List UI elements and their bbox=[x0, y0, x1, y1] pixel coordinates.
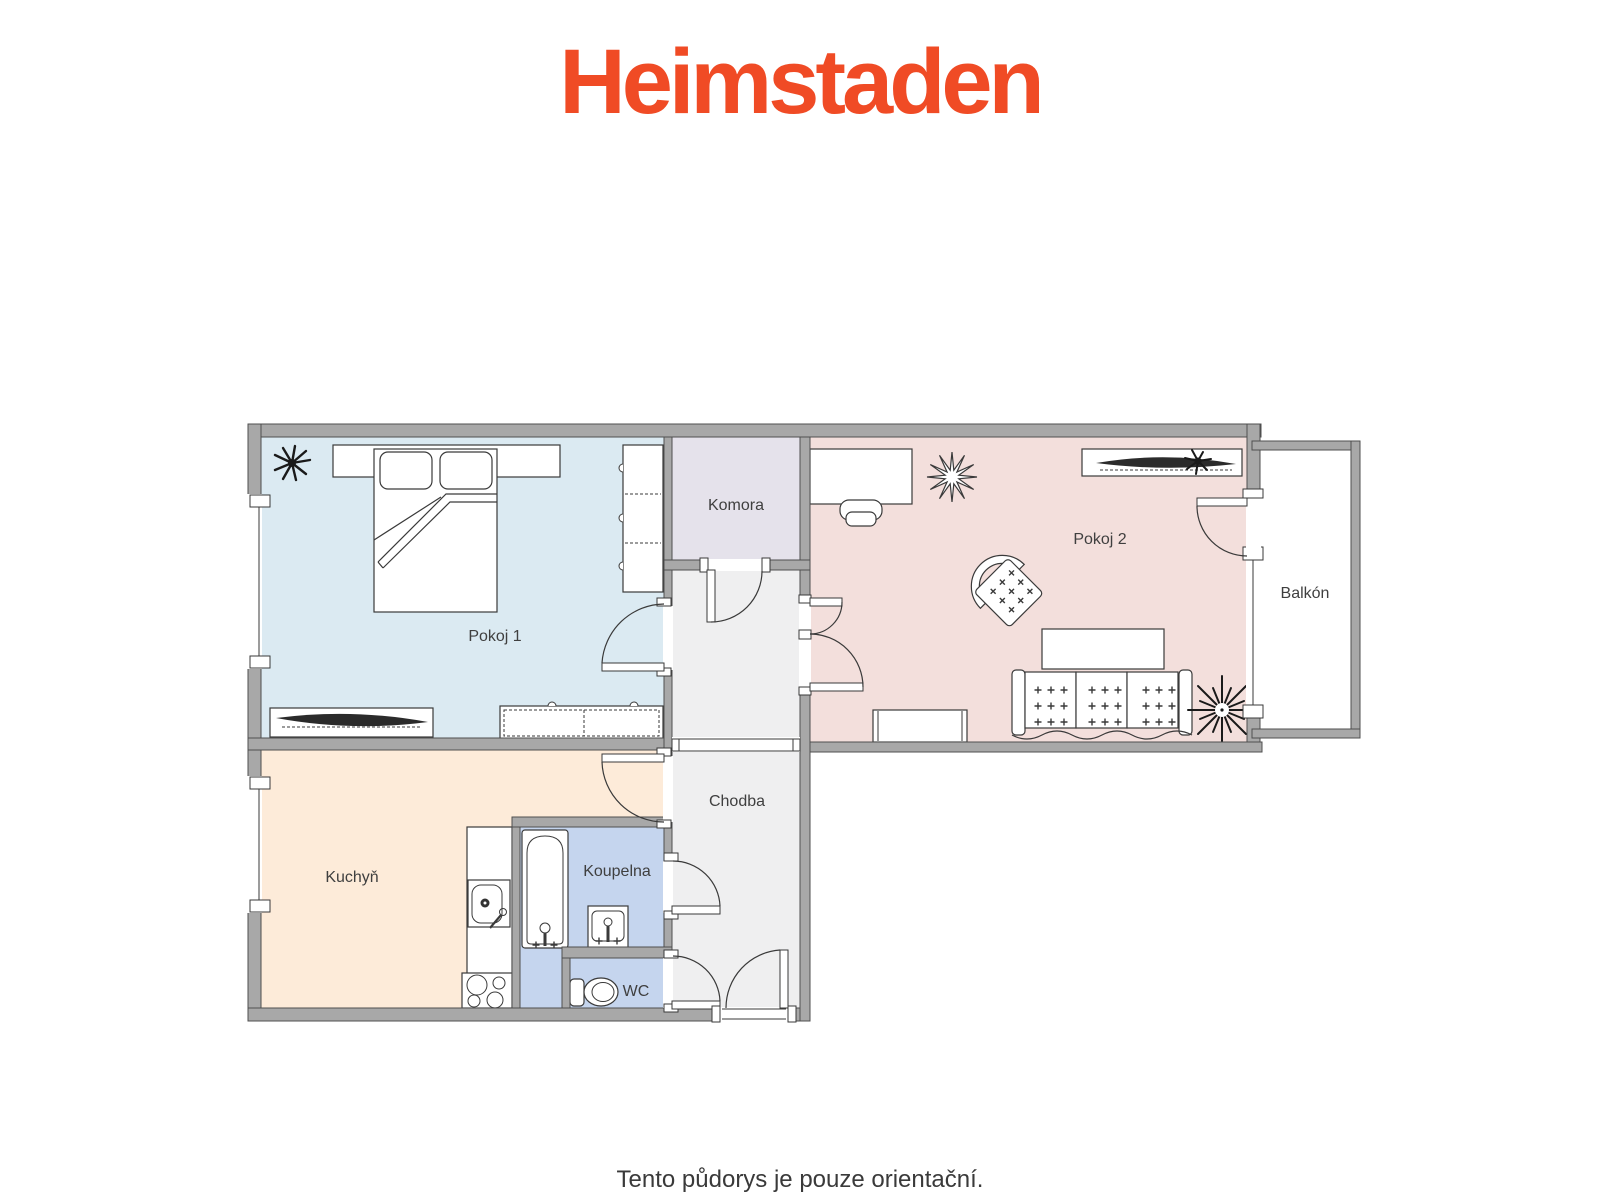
kitchen-sink bbox=[468, 880, 510, 928]
label-pokoj2: Pokoj 2 bbox=[1073, 531, 1126, 548]
chodba-floor bbox=[668, 566, 804, 1014]
wardrobe bbox=[619, 445, 663, 592]
wall-balkon-right bbox=[1351, 441, 1360, 738]
passage-chodba bbox=[672, 737, 800, 752]
bathroom-sink bbox=[588, 906, 628, 948]
wall-balkon-top bbox=[1252, 441, 1360, 450]
bathtub bbox=[522, 830, 568, 949]
desk-chair bbox=[840, 500, 882, 526]
label-wc: WC bbox=[623, 983, 650, 1000]
window-pokoj2 bbox=[1243, 547, 1263, 718]
page: Heimstaden bbox=[0, 0, 1600, 1200]
wall-koupelna-wc bbox=[562, 947, 672, 958]
cabinet bbox=[873, 710, 967, 742]
disclaimer-text: Tento půdorys je pouze orientační. bbox=[0, 1166, 1600, 1194]
label-komora: Komora bbox=[708, 497, 764, 514]
coffee-table bbox=[1042, 629, 1164, 669]
label-kuchyn: Kuchyň bbox=[325, 869, 378, 886]
dresser bbox=[500, 702, 663, 740]
desk bbox=[810, 449, 912, 504]
floorplan: Pokoj 1 Komora Pokoj 2 Balkón Kuchyň Kou… bbox=[0, 0, 1600, 1200]
wall-koupelna-top bbox=[512, 817, 672, 827]
label-balkon: Balkón bbox=[1281, 585, 1330, 602]
radiator bbox=[270, 708, 433, 737]
stove bbox=[462, 973, 512, 1008]
wall-top bbox=[248, 424, 1261, 437]
pillow bbox=[380, 452, 432, 489]
toilet bbox=[570, 978, 618, 1006]
furniture-kuchyn bbox=[462, 827, 512, 1008]
wall-interior-vertical bbox=[664, 437, 672, 1008]
label-koupelna: Koupelna bbox=[583, 863, 651, 880]
label-chodba: Chodba bbox=[709, 793, 765, 810]
wall-divider bbox=[248, 738, 672, 750]
wall-pokoj2-bottom bbox=[800, 742, 1262, 752]
wall-counter bbox=[512, 827, 520, 1008]
label-pokoj1: Pokoj 1 bbox=[468, 628, 521, 645]
wall-balkon-bottom bbox=[1252, 729, 1360, 738]
wall-chodba-right bbox=[800, 437, 810, 1021]
wall-wc-left bbox=[562, 958, 570, 1008]
pillow bbox=[440, 452, 492, 489]
